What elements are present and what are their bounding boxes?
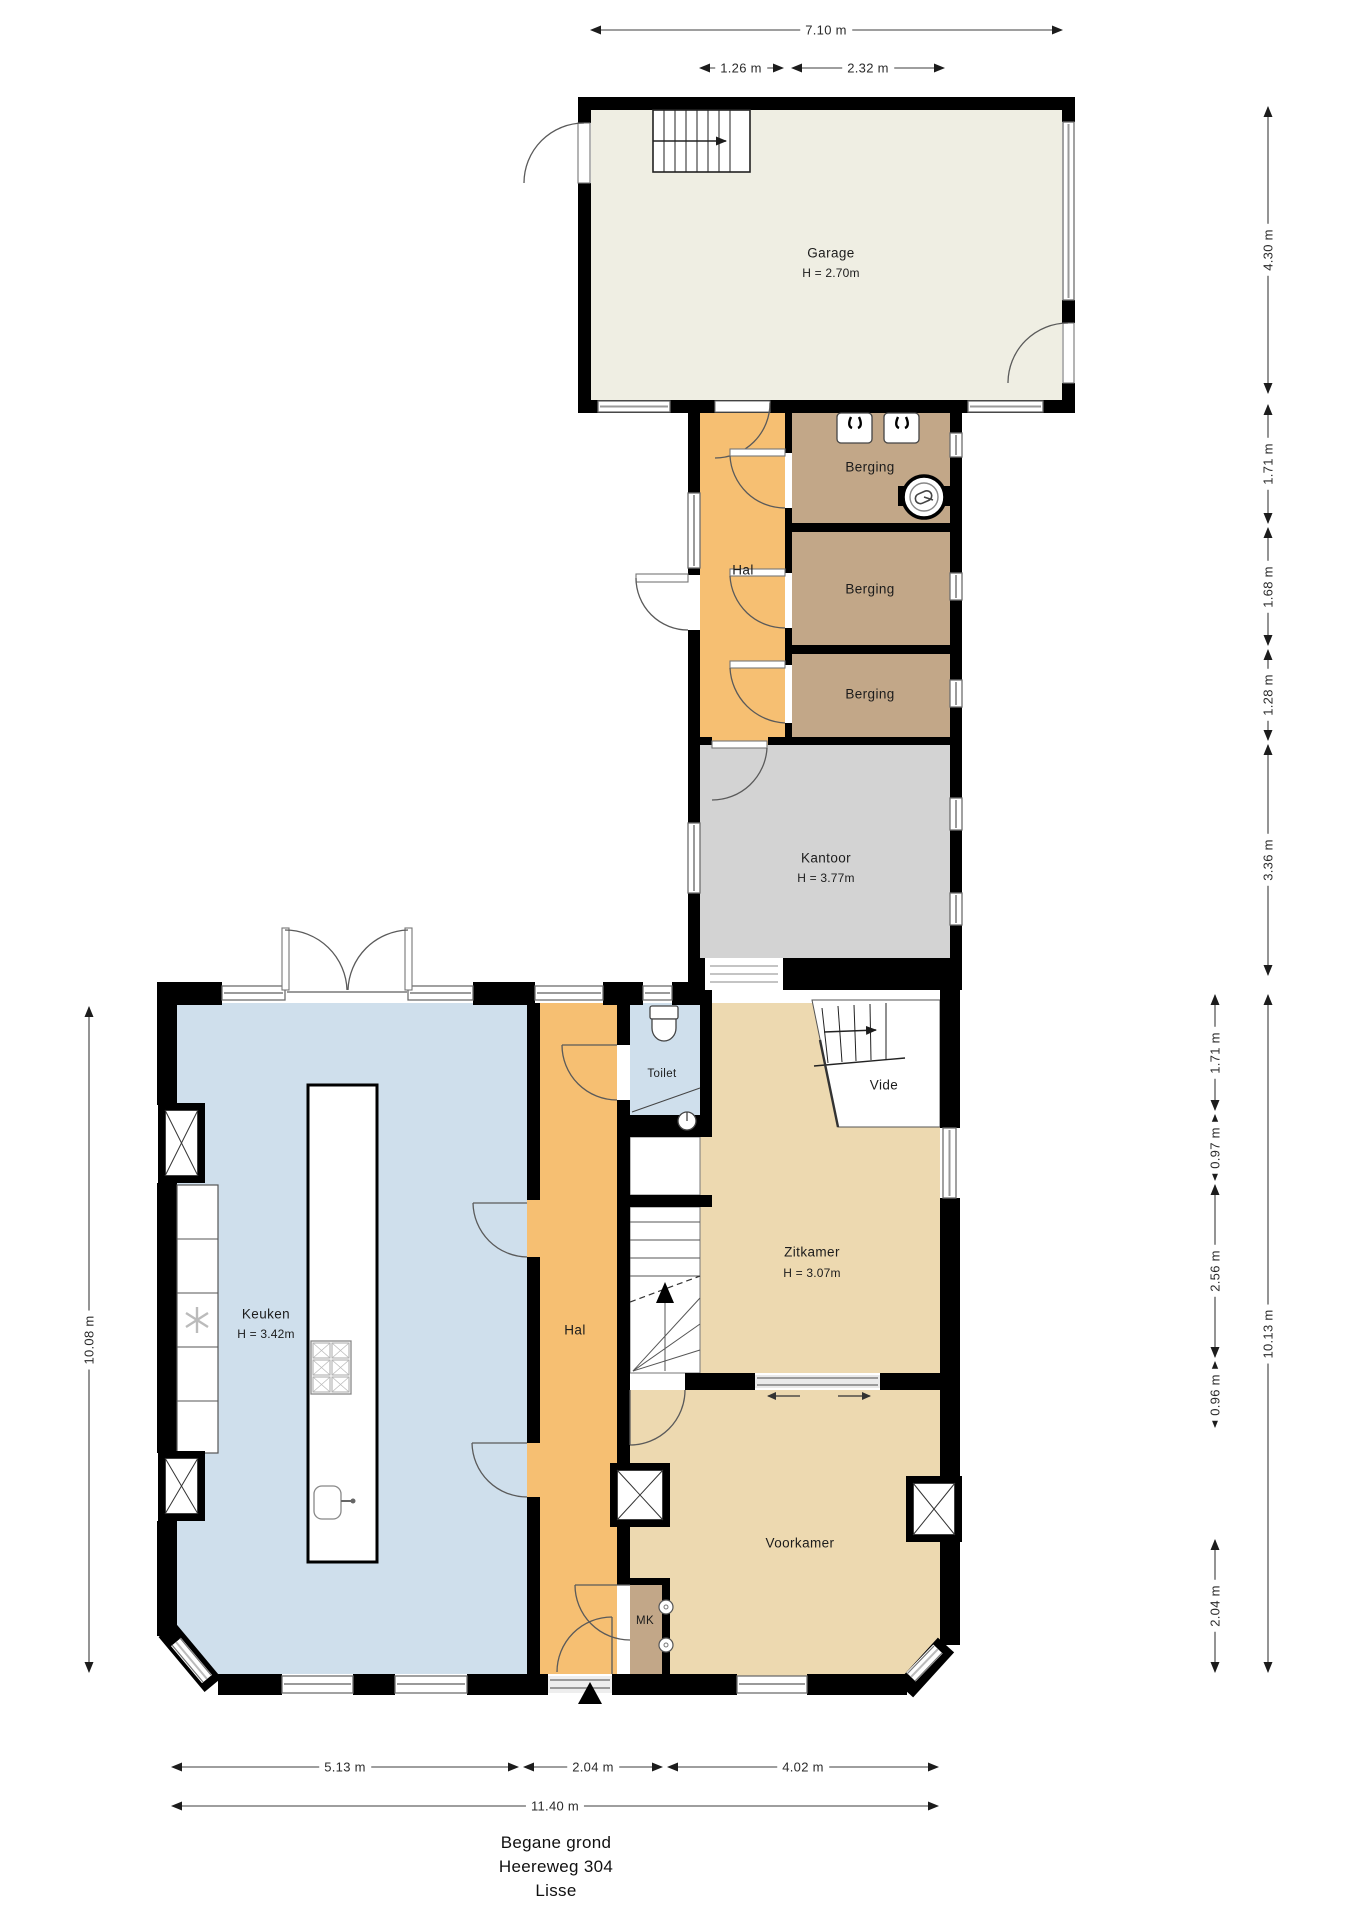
room-height-keuken: H = 3.42m <box>237 1327 295 1341</box>
room-label-berging-2: Berging <box>845 582 894 597</box>
dim-right-tussen: 0.96 m <box>1208 1369 1223 1421</box>
room-label-hal-boven: Hal <box>732 563 753 578</box>
mk-floor <box>630 1585 662 1674</box>
toilet-sink-icon <box>678 1112 696 1130</box>
room-label-hal-beneden: Hal <box>564 1323 585 1338</box>
garage-staircase-icon <box>653 110 750 172</box>
dim-left-total: 10.08 m <box>82 1310 97 1369</box>
room-label-garage: Garage <box>807 246 854 261</box>
dim-bottom-hal: 2.04 m <box>567 1760 619 1775</box>
floorplan-page: Garage H = 2.70m Hal Berging Berging Ber… <box>0 0 1358 1920</box>
dim-top-hal: 1.26 m <box>715 61 767 76</box>
room-label-berging-3: Berging <box>845 687 894 702</box>
toilet-icon <box>650 1006 678 1041</box>
room-label-voorkamer: Voorkamer <box>766 1536 835 1551</box>
kitchen-cabinets <box>177 1185 218 1453</box>
chimney-flue-right <box>906 1476 962 1542</box>
room-height-zitkamer: H = 3.07m <box>783 1266 841 1280</box>
dim-right-voorkamer: 2.04 m <box>1208 1580 1223 1632</box>
room-label-zitkamer: Zitkamer <box>784 1245 840 1260</box>
hal-boven-window <box>688 493 700 568</box>
dim-right-zitkamer: 2.56 m <box>1208 1245 1223 1297</box>
chimney-flue-left-lower <box>158 1451 205 1521</box>
dim-top-total: 7.10 m <box>800 23 852 38</box>
plan-title-floor: Begane grond <box>501 1833 611 1853</box>
room-height-kantoor: H = 3.77m <box>797 871 855 885</box>
kitchen-island <box>308 1085 377 1562</box>
dim-bottom-keuken: 5.13 m <box>319 1760 371 1775</box>
room-label-berging-1: Berging <box>845 460 894 475</box>
plan-title-street: Heereweg 304 <box>499 1857 613 1877</box>
dim-right-vide: 1.71 m <box>1208 1027 1223 1079</box>
dim-top-berging: 2.32 m <box>842 61 894 76</box>
kantoor-step <box>705 958 783 990</box>
chimney-flue-left-upper <box>158 1103 205 1183</box>
dim-right-berging-2: 1.68 m <box>1261 561 1276 613</box>
dim-bottom-voorkamer: 4.02 m <box>777 1760 829 1775</box>
room-label-kantoor: Kantoor <box>801 851 851 866</box>
room-label-vide: Vide <box>870 1078 898 1093</box>
floorplan-canvas <box>0 0 1358 1920</box>
dim-right-window: 0.97 m <box>1208 1122 1223 1174</box>
dim-right-garage: 4.30 m <box>1261 224 1276 276</box>
dim-right-kantoor: 3.36 m <box>1261 834 1276 886</box>
room-label-mk: MK <box>636 1615 654 1627</box>
dim-right-total: 10.13 m <box>1261 1304 1276 1363</box>
closet-niche <box>630 1137 700 1195</box>
keuken-garden-doors <box>282 928 412 992</box>
dim-bottom-total: 11.40 m <box>526 1799 584 1814</box>
chimney-flue-center <box>610 1463 670 1527</box>
stove-icon <box>311 1341 351 1394</box>
dim-right-berging-3: 1.28 m <box>1261 669 1276 721</box>
room-height-garage: H = 2.70m <box>802 266 860 280</box>
room-label-toilet: Toilet <box>647 1068 676 1080</box>
garage-side-door <box>524 123 590 183</box>
hal-exterior-door <box>636 574 688 630</box>
hal-beneden-floor <box>527 1003 617 1674</box>
plan-title-city: Lisse <box>535 1881 576 1901</box>
room-label-keuken: Keuken <box>242 1307 290 1322</box>
zitkamer-window <box>943 1128 956 1198</box>
dim-right-berging-1: 1.71 m <box>1261 438 1276 490</box>
